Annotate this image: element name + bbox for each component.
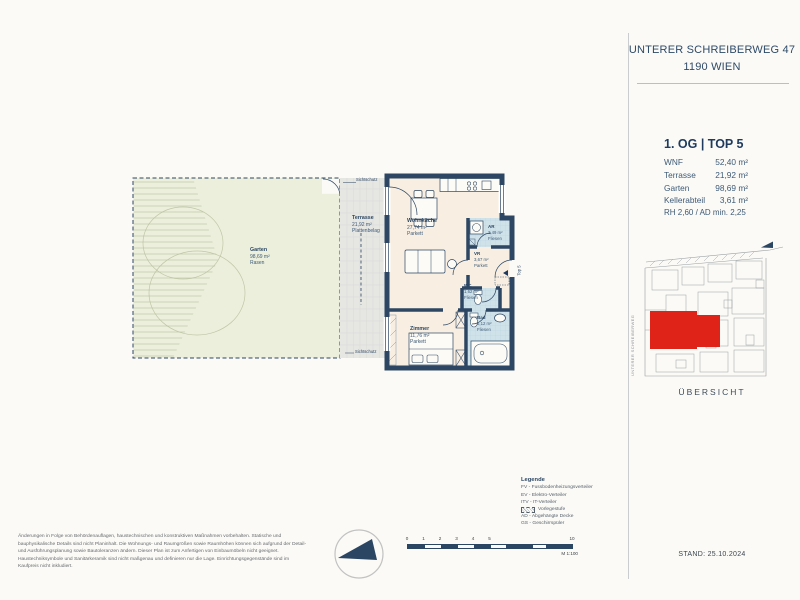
- room-label-wc: WC 1,62 m² Fliesen: [464, 283, 479, 300]
- room-floor: Parkett: [407, 231, 437, 238]
- kitchen-counter: [440, 179, 502, 192]
- legend-item: GS - Geschirrspüler: [521, 520, 593, 527]
- floor-plan: [125, 165, 545, 380]
- address-line2: 1190 WIEN: [628, 59, 796, 76]
- room-label-zimmer: Zimmer 11,76 m² Parkett: [410, 326, 429, 346]
- room-area: 2,49 m²: [488, 230, 503, 236]
- stat-label: Terrasse: [664, 169, 696, 182]
- sichtschutz-label-bottom: Sichtschutz: [355, 349, 376, 354]
- step-hatch-icon: [521, 507, 535, 513]
- project-address: UNTERER SCHREIBERWEG 47 1190 WIEN: [628, 42, 796, 75]
- room-label-wohnkueche: Wohnküche 27,74 m² Parkett: [407, 218, 437, 238]
- room-area: 27,74 m²: [407, 225, 437, 232]
- terrace-area: [340, 178, 385, 358]
- washing-machine: [470, 221, 483, 234]
- room-area: 5,12 m²: [477, 321, 492, 327]
- room-name: Zimmer: [410, 326, 429, 333]
- legend-item-text: GS - Geschirrspüler: [521, 520, 564, 527]
- entry-label: Top 5: [517, 258, 522, 284]
- room-label-ar: AR 2,49 m² Fliesen: [488, 224, 503, 241]
- compass-icon: [332, 527, 388, 583]
- bathtub: [471, 341, 510, 366]
- room-floor: Fliesen: [477, 327, 492, 333]
- stat-row: Garten 98,69 m²: [664, 182, 748, 195]
- room-label-vr: VR 3,67 m² Parkett: [474, 251, 489, 268]
- legend: Legende FV - Fussbodenheizungsverteiler …: [521, 477, 593, 528]
- plan-date: STAND: 25.10.2024: [636, 551, 788, 558]
- room-label-terrasse: Terrasse 21,92 m² Plattenbelag: [352, 215, 380, 235]
- stat-value: 52,40 m²: [715, 156, 748, 169]
- scale-tick: 3: [455, 536, 458, 541]
- scale-bar: 0 1 2 3 4 5 10 M 1:100: [406, 536, 578, 562]
- room-area: 1,62 m²: [464, 289, 479, 295]
- entry-marker: Top 5: [503, 260, 517, 286]
- bad-sink: [495, 314, 506, 322]
- legend-item-text: ITV - IT-Verteiler: [521, 499, 557, 506]
- floorplan-page: Garten 98,69 m² Rasen Terrasse 21,92 m² …: [0, 0, 800, 600]
- address-line1: UNTERER SCHREIBERWEG 47: [628, 42, 796, 59]
- room-floor: Rasen: [250, 260, 270, 267]
- sichtschutz-label-top: Sichtschutz: [356, 177, 377, 182]
- room-label-garten: Garten 98,69 m² Rasen: [250, 247, 270, 267]
- room-name: Wohnküche: [407, 218, 437, 225]
- legend-item-text: FV - Fussbodenheizungsverteiler: [521, 484, 593, 491]
- scale-bar-track: [407, 544, 573, 549]
- room-area: 3,67 m²: [474, 257, 489, 263]
- legend-item: AD - Abgehängte Decke: [521, 513, 593, 520]
- room-floor: Parkett: [410, 339, 429, 346]
- legend-item-text: AD - Abgehängte Decke: [521, 513, 573, 520]
- legend-item: Vorlegestufe: [521, 506, 593, 513]
- site-plan: [636, 240, 788, 388]
- scale-tick: 10: [569, 536, 574, 541]
- room-area: 98,69 m²: [250, 254, 270, 261]
- legend-title: Legende: [521, 477, 593, 484]
- stat-row: Terrasse 21,92 m²: [664, 169, 748, 182]
- scale-tick: 2: [439, 536, 442, 541]
- unit-title: 1. OG | TOP 5: [664, 137, 743, 151]
- room-area: 11,76 m²: [410, 333, 429, 340]
- stat-label: Kellerabteil: [664, 194, 705, 207]
- address-divider: [637, 83, 789, 84]
- room-floor: Fliesen: [488, 236, 503, 242]
- stat-value: 98,69 m²: [715, 182, 748, 195]
- room-name: Terrasse: [352, 215, 380, 222]
- scale-tick: 4: [472, 536, 475, 541]
- sofa: [405, 250, 445, 273]
- room-height-note: RH 2,60 / AD min. 2,25: [664, 207, 748, 220]
- legend-item: EV - Elektro-Verteiler: [521, 492, 593, 499]
- scale-ratio-label: M 1:100: [561, 551, 578, 556]
- street-name-label: UNTERER SCHREIBERWEG: [630, 266, 635, 376]
- room-area: 21,92 m²: [352, 222, 380, 229]
- unit-stats: WNF 52,40 m² Terrasse 21,92 m² Garten 98…: [664, 156, 748, 220]
- scale-tick: 0: [406, 536, 409, 541]
- garden-area: [133, 178, 340, 358]
- room-floor: Parkett: [474, 263, 489, 269]
- legend-item-text: Vorlegestufe: [538, 506, 565, 513]
- legend-item: ITV - IT-Verteiler: [521, 499, 593, 506]
- sidebar-divider: [628, 33, 629, 579]
- legend-item: FV - Fussbodenheizungsverteiler: [521, 484, 593, 491]
- stat-label: WNF: [664, 156, 683, 169]
- stat-value: 21,92 m²: [715, 169, 748, 182]
- stat-value: 3,61 m²: [720, 194, 748, 207]
- entry-arrow-icon: [503, 270, 508, 276]
- north-arrow-icon: [761, 242, 773, 249]
- stat-row: WNF 52,40 m²: [664, 156, 748, 169]
- room-floor: Plattenbelag: [352, 228, 380, 235]
- overview-label: ÜBERSICHT: [636, 387, 788, 397]
- room-label-bad: Bad 5,12 m² Fliesen: [477, 315, 492, 332]
- disclaimer-text: Änderungen in Folge von Behördenauflagen…: [18, 533, 308, 571]
- legend-item-text: EV - Elektro-Verteiler: [521, 492, 567, 499]
- stat-row: Kellerabteil 3,61 m²: [664, 194, 748, 207]
- scale-tick: 1: [422, 536, 425, 541]
- room-name: Garten: [250, 247, 270, 254]
- room-floor: Fliesen: [464, 295, 479, 301]
- highlight-unit: [650, 311, 720, 349]
- scale-tick: 5: [488, 536, 491, 541]
- stat-label: Garten: [664, 182, 689, 195]
